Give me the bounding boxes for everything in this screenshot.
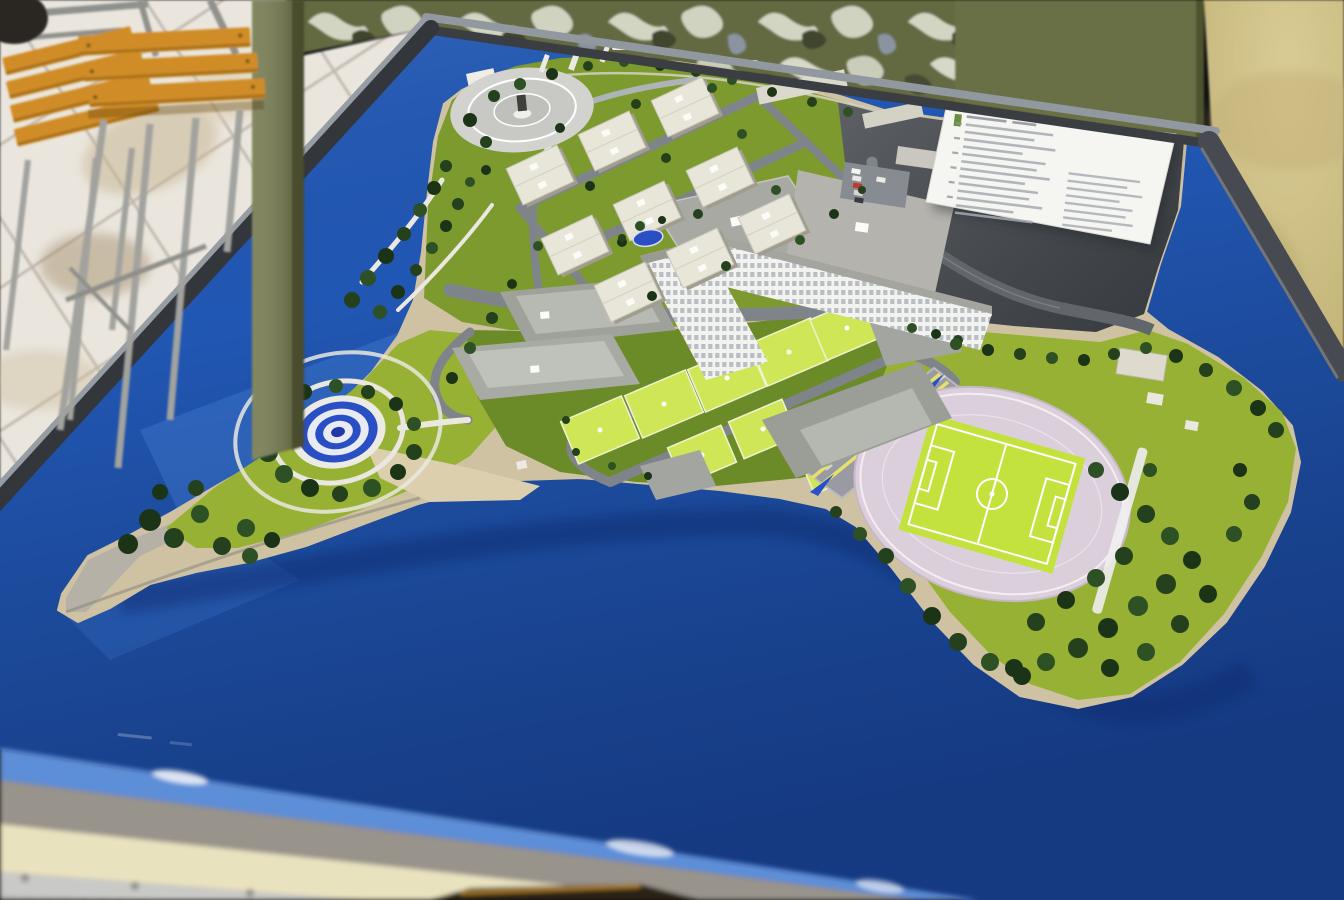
screw: [22, 875, 29, 882]
screw: [132, 883, 139, 890]
screw: [247, 890, 254, 897]
olive-panel-edge: [1196, 0, 1204, 140]
monument: [516, 95, 527, 112]
model-photo: [0, 0, 1344, 900]
